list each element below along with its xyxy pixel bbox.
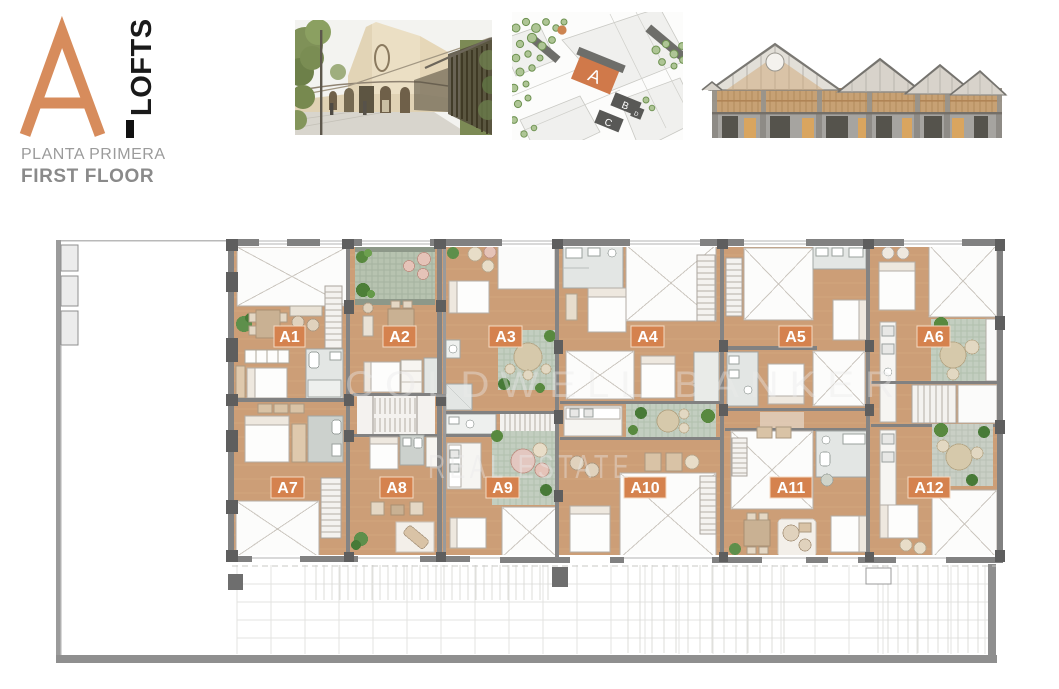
- svg-text:A3: A3: [495, 329, 516, 346]
- svg-text:A2: A2: [389, 329, 410, 346]
- svg-text:A8: A8: [386, 480, 407, 497]
- svg-text:A11: A11: [777, 480, 806, 497]
- svg-text:A6: A6: [923, 329, 944, 346]
- svg-text:FIRST FLOOR: FIRST FLOOR: [21, 166, 154, 187]
- svg-text:COLDWELL BANKER: COLDWELL BANKER: [345, 364, 905, 405]
- svg-text:A4: A4: [637, 329, 658, 346]
- svg-text:A12: A12: [914, 480, 943, 497]
- svg-text:A7: A7: [277, 480, 298, 497]
- svg-text:LOFTS: LOFTS: [126, 18, 158, 116]
- svg-text:A10: A10: [630, 480, 659, 497]
- svg-text:REAL ESTATE: REAL ESTATE: [428, 448, 633, 485]
- svg-text:A5: A5: [785, 329, 806, 346]
- svg-text:PLANTA PRIMERA: PLANTA PRIMERA: [21, 146, 166, 163]
- svg-text:A1: A1: [279, 329, 300, 346]
